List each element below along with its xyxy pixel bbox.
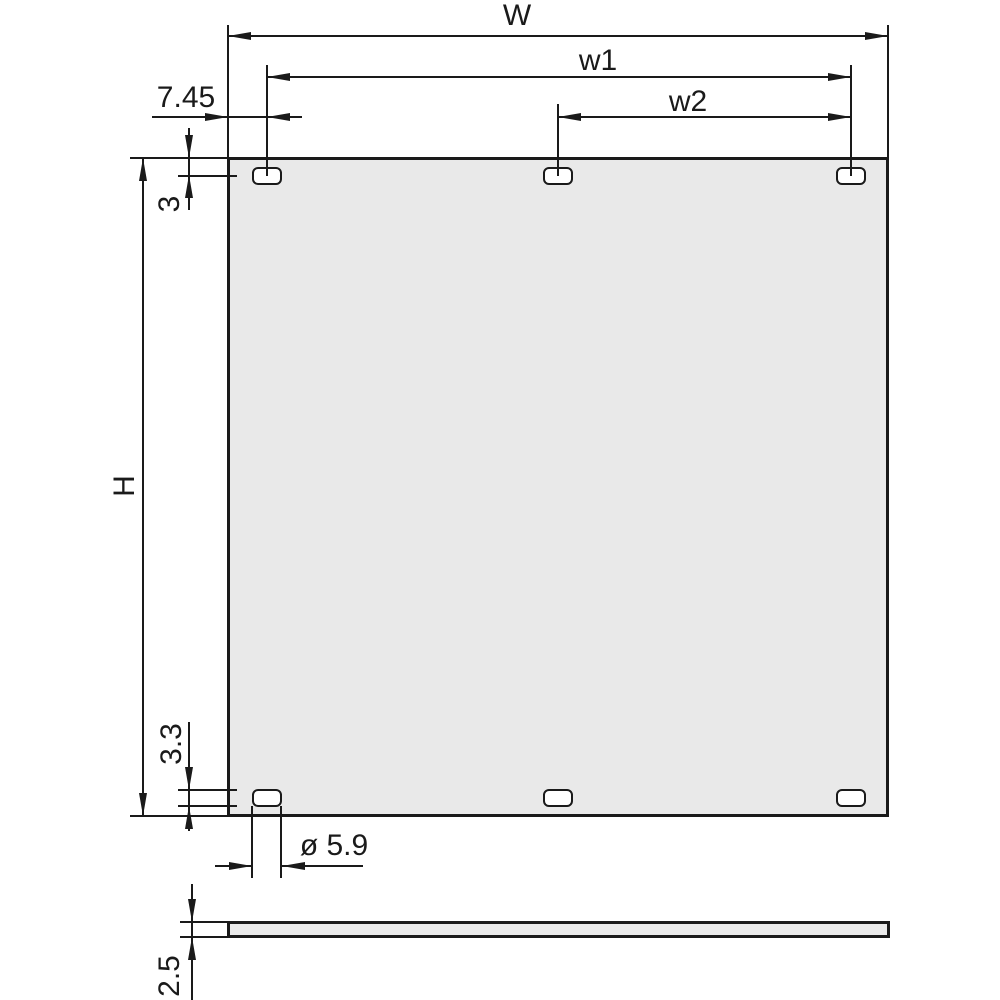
label-7-45: 7.45: [146, 82, 226, 114]
arrow-5-9-right: [282, 862, 305, 870]
arrow-w1-left: [267, 73, 290, 81]
ext-line-W-right: [887, 25, 889, 157]
arrow-5-9-left: [229, 862, 252, 870]
dim-line-W: [228, 35, 888, 37]
arrow-H-bottom: [139, 793, 147, 816]
label-height-H: H: [103, 464, 147, 508]
arrow-w1-right: [828, 73, 851, 81]
mounting-slot-bottom-middle: [543, 789, 573, 807]
dim-line-w1: [267, 76, 851, 78]
dimension-drawing: W w1 w2 7.45 3 H 3.3 ø 5.9 2.5: [0, 0, 1000, 1000]
arrow-W-right: [865, 32, 888, 40]
arrow-3-3-bottom: [185, 806, 193, 829]
label-3: 3: [148, 184, 192, 224]
label-3-3: 3.3: [152, 704, 192, 784]
mounting-slot-bottom-right: [836, 789, 866, 807]
front-panel-face: [227, 157, 889, 817]
label-5-9: ø 5.9: [284, 830, 384, 862]
arrow-H-top: [139, 158, 147, 181]
ext-line-W-left: [227, 25, 229, 157]
arrow-w2-left: [558, 113, 581, 121]
arrow-7-45-right: [267, 113, 290, 121]
label-width-W: W: [487, 0, 547, 32]
label-w2: w2: [658, 86, 718, 118]
arrow-3-top: [185, 135, 193, 158]
arrow-W-left: [228, 32, 251, 40]
panel-side-view: [227, 921, 890, 938]
mounting-slot-bottom-left: [252, 789, 282, 807]
label-2-5: 2.5: [150, 936, 190, 1000]
arrow-2-5-top: [188, 899, 196, 922]
arrow-w2-right: [828, 113, 851, 121]
label-w1: w1: [568, 45, 628, 77]
